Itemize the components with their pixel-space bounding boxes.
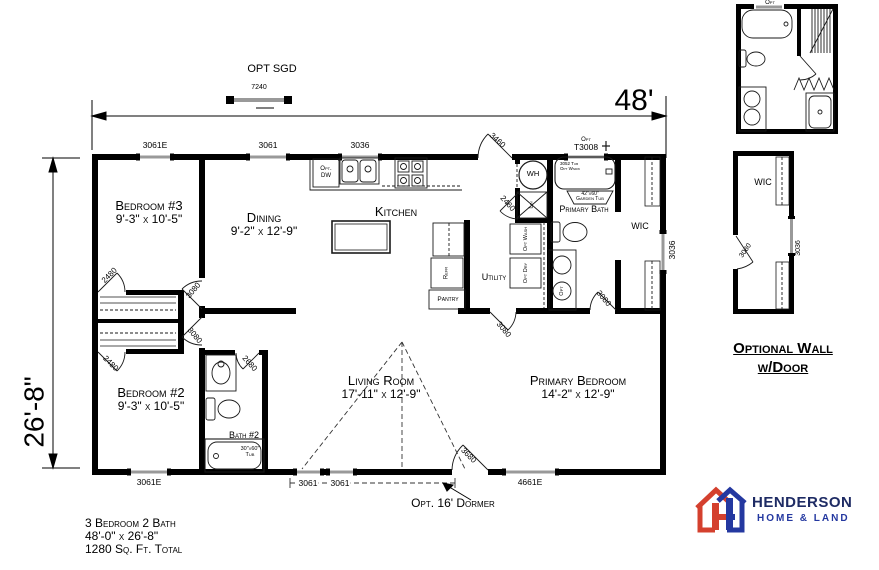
side-caption-line2: w/Door: [758, 360, 808, 377]
room-dims-bedroom3: 9'-3" x 10'-5": [116, 213, 182, 226]
window-label-top-dining: 3061: [259, 141, 278, 151]
side-opt-bath-label: Opt: [765, 0, 775, 7]
title-block-line3: 1280 Sq. Ft. Total: [85, 543, 182, 556]
side-wic-label: WIC: [754, 177, 772, 187]
room-dims-primary-bedroom: 14'-2" x 12'-9": [541, 388, 614, 401]
tub-note-2: Opt Wndw: [560, 166, 580, 171]
side-window-label: 3036: [795, 240, 803, 256]
window-label-top-bedroom3: 3061E: [143, 141, 168, 151]
room-label-bath2: Bath #2: [229, 430, 259, 440]
washer-label: Opt Wash: [523, 227, 529, 251]
linen-label: Lin: [529, 201, 536, 208]
side-caption-line1: Optional Wall: [733, 341, 833, 358]
room-label-primary-bath: Primary Bath: [559, 204, 608, 214]
room-label-wic: WIC: [631, 221, 649, 231]
bath2-tub-label: Tub: [246, 452, 255, 458]
room-label-utility: Utility: [482, 272, 507, 282]
dishwasher-label-1: Opt.: [320, 166, 331, 173]
window-label-bottom-living-a: 3061: [298, 479, 319, 489]
window-label-top-bath: T3008: [574, 143, 598, 153]
dishwasher-label-2: DW: [321, 173, 331, 180]
room-label-pantry: Pantry: [437, 296, 458, 303]
width-dimension: 48': [614, 84, 653, 118]
refrigerator-label: Refr: [444, 267, 451, 279]
logo-house-icon: [697, 490, 745, 530]
floor-plan-page: OPT SGD 7240 48' 26'-8" 3061E 3061 3036 …: [0, 0, 879, 570]
window-label-bottom-bedroom2: 3061E: [137, 478, 162, 488]
depth-dimension: 26'-8": [18, 376, 49, 447]
room-dims-bedroom2: 9'-3" x 10'-5": [118, 400, 184, 413]
garden-tub-label: Garden Tub: [576, 197, 604, 203]
vanity-opt-label: Opt: [559, 286, 565, 295]
floor-plan-graphics: [0, 0, 879, 570]
window-label-bottom-primary: 4661E: [518, 478, 543, 488]
room-label-kitchen: Kitchen: [375, 205, 417, 220]
window-label-bottom-living-b: 3061: [330, 479, 351, 489]
opt-sgd-label: OPT SGD: [247, 63, 296, 75]
room-dims-dining: 9'-2" x 12'-9": [231, 225, 297, 238]
water-heater-label: WH: [527, 170, 540, 178]
room-dims-living: 17'-11" x 12'-9": [342, 388, 421, 401]
window-label-top-kitchen: 3036: [351, 141, 370, 151]
opt-sgd-size-label: 7240: [251, 84, 267, 92]
window-label-right-wic: 3036: [668, 241, 678, 260]
dormer-annotation: Opt. 16' Dormer: [411, 497, 495, 510]
logo-brand-text: HENDERSON: [752, 495, 852, 512]
dryer-label: Opt Dry: [523, 263, 529, 283]
logo-tagline-text: HOME & LAND: [757, 513, 850, 524]
